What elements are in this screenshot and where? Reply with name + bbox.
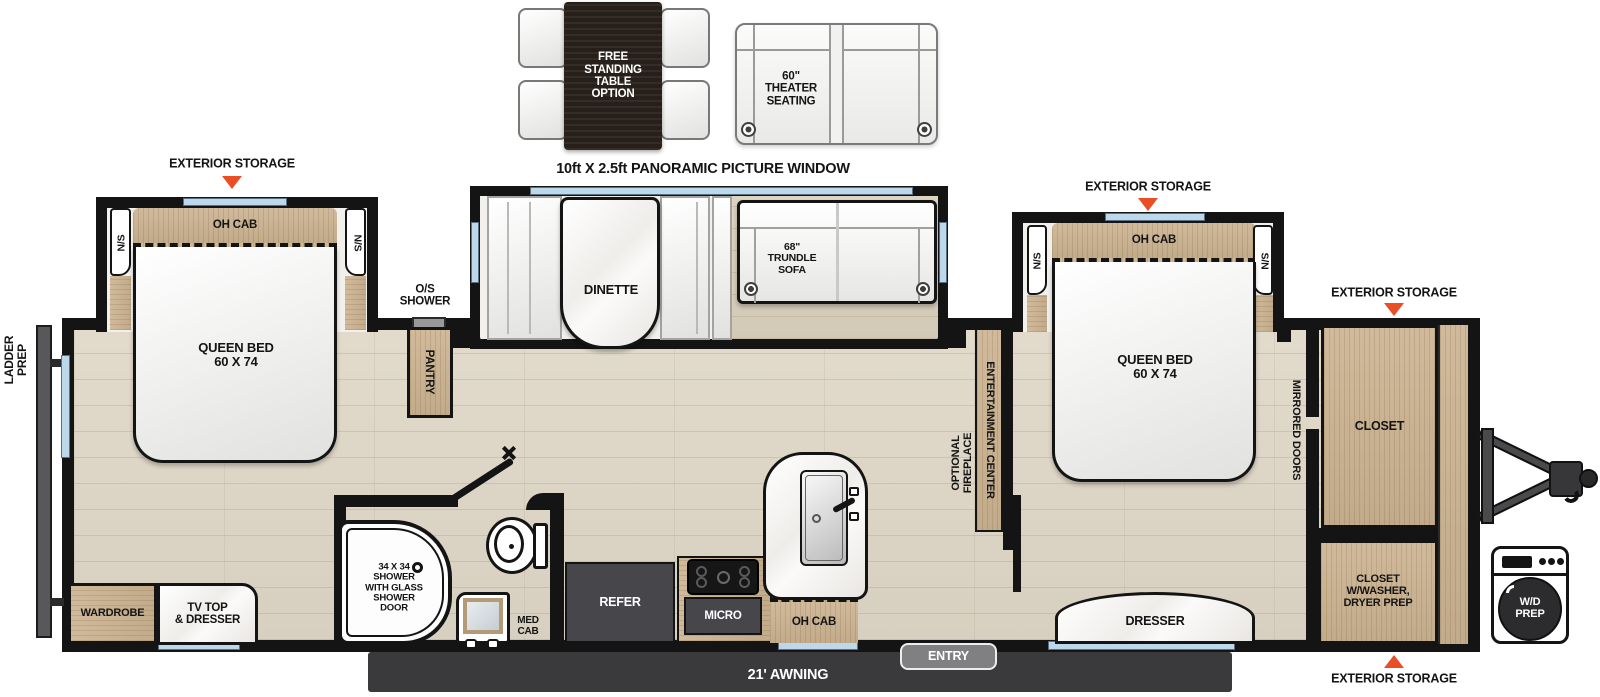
bedroom-partition-wall	[1013, 495, 1021, 592]
shower-door-pivot	[412, 562, 423, 573]
rear-nightstand-right: N/S	[345, 208, 366, 276]
bench-seam	[507, 202, 509, 334]
microwave: MICRO	[684, 597, 762, 635]
rear-queen-bed-label: QUEEN BED 60 X 74	[198, 341, 274, 369]
front-nightstand-left: N/S	[1027, 225, 1047, 295]
table-chair	[518, 80, 568, 140]
sink-inner-line	[805, 475, 843, 561]
washer-closet: CLOSET W/WASHER, DRYER PREP	[1318, 540, 1438, 644]
front-queen-bed-label: QUEEN BED 60 X 74	[1117, 353, 1193, 381]
kitchen-oh-cab-label: OH CAB	[770, 602, 858, 643]
washer-dryer-icon: W/D PREP	[1491, 546, 1569, 644]
theater-cupholder-left	[741, 122, 756, 137]
exterior-storage-arrow	[222, 176, 242, 189]
trundle-sofa-label: 68" TRUNDLE SOFA	[768, 242, 817, 276]
trundle-sofa: 68" TRUNDLE SOFA	[737, 200, 937, 304]
front-closet: CLOSET	[1321, 325, 1438, 528]
cooktop	[687, 559, 759, 595]
rear-nightstand-left-base	[110, 276, 131, 330]
faucet-bracket	[849, 487, 859, 496]
rear-oh-cab: OH CAB	[133, 208, 337, 247]
kitchen-oh-cab: OH CAB	[770, 598, 858, 643]
panoramic-window-label: 10ft X 2.5ft PANORAMIC PICTURE WINDOW	[556, 162, 850, 178]
rear-oh-cab-label: OH CAB	[133, 208, 337, 243]
wardrobe-label: WARDROBE	[71, 586, 154, 641]
window-front-slideout	[1105, 213, 1205, 221]
rear-nightstand-left-label: N/S	[116, 235, 127, 252]
washer-drum: W/D PREP	[1498, 577, 1562, 641]
exterior-storage-arrow	[1384, 655, 1404, 668]
mirrored-door-wall-stub	[1277, 320, 1291, 342]
front-nightstand-left-base	[1027, 295, 1047, 332]
rear-nightstand-right-base	[345, 276, 366, 330]
os-shower-label: O/S SHOWER	[400, 284, 451, 309]
wd-prep-label: W/D PREP	[1500, 579, 1560, 639]
pantry-label: PANTRY	[423, 350, 435, 395]
exterior-storage-label: EXTERIOR STORAGE	[1331, 286, 1457, 300]
exterior-storage-label: EXTERIOR STORAGE	[1331, 672, 1457, 686]
mirrored-doors-label: MIRRORED DOORS	[1289, 380, 1301, 480]
micro-label: MICRO	[686, 599, 760, 633]
washer-closet-label: CLOSET W/WASHER, DRYER PREP	[1321, 543, 1435, 641]
window-living-slideout-left	[471, 222, 479, 283]
optional-fireplace-label: OPTIONAL FIREPLACE	[951, 433, 975, 494]
front-dresser: DRESSER	[1055, 592, 1255, 644]
table-chair	[660, 8, 710, 68]
hitch-crossbar	[1481, 428, 1494, 524]
free-standing-table: FREE STANDING TABLE OPTION	[564, 2, 662, 150]
front-wall-cabinet-strip	[1438, 325, 1468, 644]
theater-cupholder-right	[917, 122, 932, 137]
vanity-knob	[465, 639, 477, 649]
floorplan-canvas: LADDER PREP FREE STANDING TABLE OPTION 6…	[0, 0, 1600, 697]
dinette-bench-left	[487, 196, 562, 340]
window-living-slideout-right	[939, 222, 947, 283]
tv-top-dresser-label: TV TOP & DRESSER	[160, 586, 255, 642]
free-standing-table-label: FREE STANDING TABLE OPTION	[564, 2, 662, 150]
vanity-mirror	[463, 598, 503, 634]
dinette-bench-right	[660, 196, 710, 340]
front-oh-cab: OH CAB	[1052, 223, 1256, 262]
front-nightstand-left-label: N/S	[1032, 253, 1043, 270]
closet-divider-wall	[1306, 528, 1438, 540]
exterior-storage-arrow	[1384, 303, 1404, 316]
burner	[696, 577, 707, 588]
theater-seating-label: 60" THEATER SEATING	[765, 70, 817, 107]
tv-top-dresser: TV TOP & DRESSER	[157, 583, 258, 645]
front-nightstand-right-base	[1253, 295, 1273, 332]
front-queen-bed: QUEEN BED 60 X 74	[1052, 262, 1256, 482]
table-chair	[518, 8, 568, 68]
faucet-bracket	[849, 512, 859, 521]
sofa-cupholder-right	[916, 282, 930, 296]
front-nightstand-right-label: S/N	[1258, 253, 1269, 270]
front-oh-cab-label: OH CAB	[1052, 223, 1256, 258]
pantry: PANTRY	[407, 327, 453, 418]
rear-nightstand-left: N/S	[110, 208, 131, 276]
burner-center	[717, 571, 730, 584]
toilet	[486, 517, 538, 574]
mirrored-door-wall	[1306, 429, 1319, 530]
washer-knob-dot	[1557, 558, 1564, 565]
vanity-knob	[487, 639, 499, 649]
washer-panel-line	[1494, 573, 1566, 576]
kitchen-sink	[800, 470, 848, 566]
med-cab-label: MED CAB	[517, 616, 539, 638]
burner	[739, 566, 750, 577]
toilet-tank	[533, 523, 548, 569]
bathroom-wall-right	[550, 500, 564, 643]
ent-center-backing-wall	[1003, 325, 1013, 550]
mirrored-door-wall	[1306, 325, 1319, 417]
burner	[696, 566, 707, 577]
entry-door: ENTRY	[900, 643, 997, 670]
wardrobe: WARDROBE	[68, 583, 157, 644]
med-cab-vanity	[456, 592, 510, 644]
entry-label: ENTRY	[902, 645, 995, 668]
bathroom-wall-top	[334, 495, 458, 507]
bench-seam	[529, 202, 531, 334]
window-rear-wall	[61, 355, 70, 458]
burner	[739, 577, 750, 588]
theater-console	[829, 25, 844, 143]
rear-ladder-bar	[36, 325, 52, 638]
refer-label: REFER	[567, 564, 673, 641]
exterior-storage-label: EXTERIOR STORAGE	[169, 157, 295, 171]
window-panoramic	[530, 187, 913, 195]
awning-bar: 21' AWNING	[368, 652, 1232, 692]
shower-stall: 34 X 34 SHOWER WITH GLASS SHOWER DOOR	[338, 520, 452, 645]
sofa-center-divider	[836, 203, 839, 301]
closet-side-wall	[1306, 528, 1318, 644]
sofa-cupholder-left	[744, 282, 758, 296]
front-closet-label: CLOSET	[1324, 328, 1435, 525]
entertainment-center-label: ENTERTAINMENT CENTER	[983, 361, 995, 499]
rear-queen-bed: QUEEN BED 60 X 74	[133, 247, 337, 463]
hitch-ball	[1579, 469, 1598, 488]
washer-knob-dot	[1548, 558, 1555, 565]
front-dresser-label: DRESSER	[1058, 595, 1252, 641]
rear-nightstand-right-label: N/S	[351, 235, 362, 252]
bench-seam	[696, 202, 698, 334]
slideout-end-panel	[712, 196, 732, 340]
ladder-mount-bottom	[50, 598, 64, 606]
awning-label: 21' AWNING	[748, 668, 829, 684]
ladder-prep-label: LADDER PREP	[3, 336, 29, 385]
washer-control-panel	[1502, 556, 1532, 568]
dinette-label: DINETTE	[584, 283, 638, 297]
exterior-storage-arrow	[1138, 198, 1158, 211]
toilet-dot	[509, 544, 514, 549]
front-nightstand-right: S/N	[1253, 225, 1273, 295]
exterior-storage-label: EXTERIOR STORAGE	[1085, 180, 1211, 194]
refrigerator: REFER	[565, 562, 675, 643]
window-rear-slideout	[183, 198, 287, 206]
washer-knob-dot	[1539, 558, 1546, 565]
table-chair	[660, 80, 710, 140]
theater-seating: 60" THEATER SEATING	[735, 23, 938, 145]
sink-drain	[812, 514, 821, 523]
dinette-table: DINETTE	[560, 197, 660, 349]
